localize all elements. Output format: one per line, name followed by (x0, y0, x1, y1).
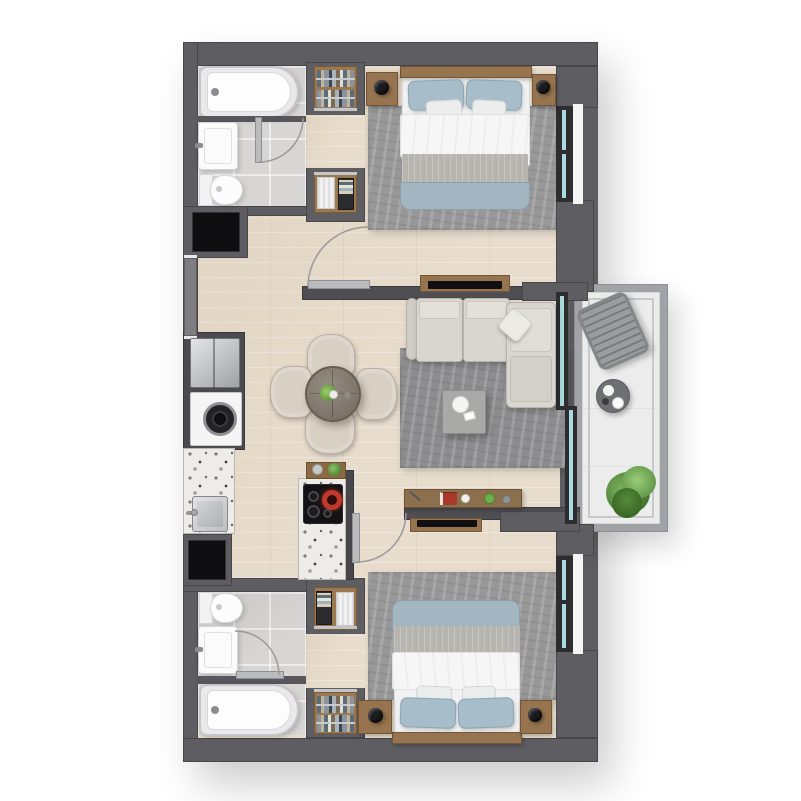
partition-bedroom-top-end (522, 282, 588, 301)
dining-chair-east (356, 368, 397, 420)
lamp-bottom-left (368, 708, 383, 723)
lamp-top-left (374, 80, 389, 95)
bed-bottom-pillow-blue-right (457, 697, 514, 729)
cooktop-burner-2 (307, 505, 320, 518)
console-stone (502, 495, 511, 504)
door-leaf-bathroom-bottom (236, 671, 284, 679)
vanity-sink-bottom-bowl (204, 632, 232, 668)
bed-bottom-headboard (392, 732, 522, 744)
dressing-passage-top-floor (306, 115, 365, 168)
toilet-bottom-bowl (210, 593, 243, 623)
cooktop-burner-1 (308, 491, 319, 502)
tv-bedroom-bottom (417, 520, 477, 527)
basket-niche-top-track (314, 172, 357, 175)
balcony-cup-3 (602, 398, 609, 405)
balcony-sliding-door-glass-2 (569, 410, 573, 520)
bed-bottom-duvet (392, 652, 520, 690)
console-mug (461, 494, 470, 503)
door-leaf-bedroom-bottom (352, 513, 360, 563)
bathtub-top-basin (207, 72, 291, 112)
balcony-cup-1 (603, 385, 614, 396)
coffee-table-bowl (452, 396, 469, 413)
wardrobe-top-rail-1 (316, 78, 355, 80)
wardrobe-bottom-rail-1 (316, 704, 355, 706)
window-bottom-sill (573, 554, 583, 654)
wardrobe-top-track (314, 108, 357, 111)
tray-herb-plant (328, 463, 341, 476)
kitchen-faucet-knob (191, 509, 198, 516)
wall-right-corner-bottom (556, 650, 598, 738)
laundry-basket-top (317, 177, 335, 209)
bed-top-throw (400, 182, 530, 210)
bed-top-headboard (400, 66, 532, 78)
utility-shaft-bottom (188, 540, 226, 580)
vanity-sink-top-bowl (204, 128, 232, 164)
window-bedroom-top-glass (562, 110, 566, 198)
window-bedroom-bottom-glass (562, 560, 566, 648)
vanity-sink-bottom-faucet (195, 647, 203, 652)
wardrobe-top-rail-2 (316, 97, 355, 99)
wall-right-corner-top (556, 66, 598, 108)
toilet-bottom-button (216, 604, 222, 610)
window-top-sill (573, 104, 583, 204)
window-bedroom-bottom-mullion (556, 600, 573, 604)
balcony-plant-leaf-dark (612, 488, 642, 518)
towel-stack-top (339, 180, 353, 194)
cooktop-burner-3 (323, 509, 332, 518)
sofa-seat-2-cushion (466, 301, 507, 319)
console-books (440, 492, 457, 505)
dining-cup (344, 392, 351, 399)
entry-door (184, 258, 197, 336)
bed-bottom-pillow-blue-left (399, 697, 456, 729)
window-bedroom-top-mullion (556, 150, 573, 154)
console-green-bowl (484, 493, 495, 504)
wall-top (183, 42, 598, 66)
wall-bottom (183, 738, 598, 762)
utility-shaft-top (192, 212, 240, 252)
washing-machine-drum (212, 411, 228, 427)
toilet-top-bowl (210, 175, 243, 205)
lamp-bottom-right (528, 708, 542, 722)
bathtub-bottom-basin (207, 690, 291, 730)
tray-mug (312, 464, 323, 475)
entry-door-jamb-top (184, 255, 197, 258)
refrigerator-door-split (213, 338, 215, 388)
tv-bedroom-top (428, 281, 502, 289)
bathtub-bottom-faucet (211, 706, 219, 714)
lamp-top-right (536, 80, 550, 94)
floor-plan-canvas (0, 0, 801, 801)
basket-niche-bottom-track (314, 626, 357, 629)
wall-right-middle (556, 200, 594, 292)
door-leaf-bathroom-top (255, 117, 262, 163)
dressing-passage-bottom-floor (306, 634, 365, 688)
dining-plate (329, 390, 338, 399)
vanity-sink-top-faucet (195, 143, 203, 148)
bathtub-top-faucet (211, 88, 219, 96)
balcony-side-table (596, 379, 630, 413)
refrigerator (190, 338, 240, 388)
sofa-chaise-cushion-2 (510, 356, 552, 402)
cooktop-burner-active (322, 490, 342, 510)
laundry-basket-bottom (336, 592, 354, 626)
balcony-sliding-door-glass-1 (560, 296, 564, 406)
towel-stack-bottom (317, 593, 331, 607)
wardrobe-bottom-rail-2 (316, 722, 355, 724)
wardrobe-bottom-track (314, 689, 357, 692)
sofa-seat-1-cushion (419, 301, 460, 319)
door-leaf-bedroom-top (308, 280, 370, 289)
balcony-cup-2 (612, 397, 624, 409)
toilet-top-button (216, 186, 222, 192)
bed-top-duvet (400, 114, 530, 158)
